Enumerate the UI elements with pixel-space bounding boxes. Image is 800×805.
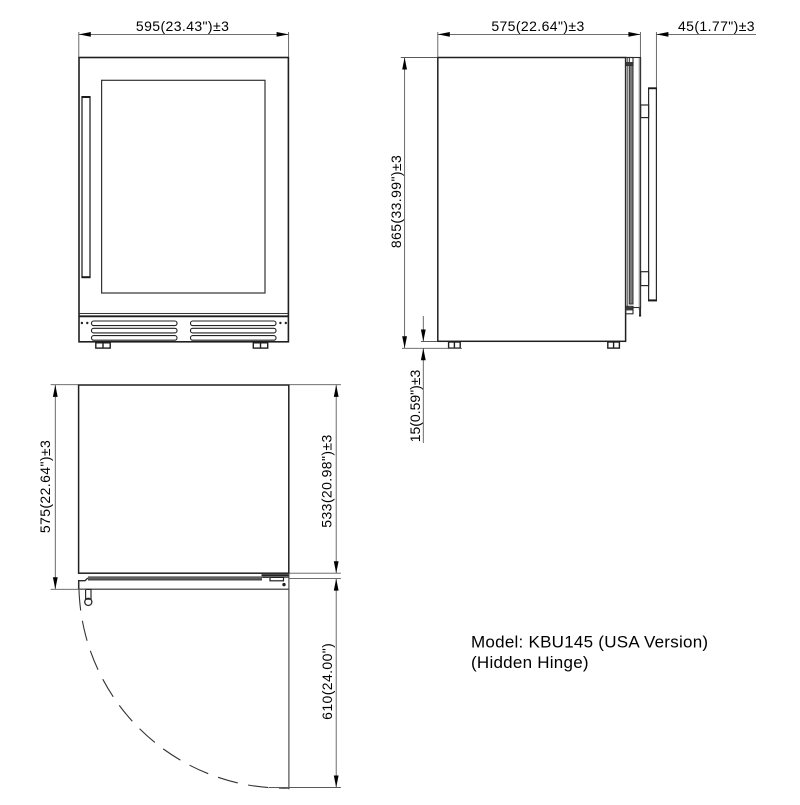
svg-text:575(22.64")±3: 575(22.64")±3: [37, 440, 53, 533]
svg-text:15(0.59")±3: 15(0.59")±3: [407, 369, 423, 442]
svg-text:575(22.64")±3: 575(22.64")±3: [491, 18, 584, 34]
svg-text:(Hidden Hinge): (Hidden Hinge): [471, 653, 589, 672]
svg-text:533(20.98")±3: 533(20.98")±3: [319, 434, 335, 527]
svg-text:45(1.77")±3: 45(1.77")±3: [678, 18, 755, 34]
svg-text:595(23.43")±3: 595(23.43")±3: [136, 18, 229, 34]
svg-text:610(24.00"): 610(24.00"): [319, 643, 335, 720]
svg-text:Model: KBU145 (USA Version): Model: KBU145 (USA Version): [471, 633, 708, 652]
svg-text:865(33.99")±3: 865(33.99")±3: [388, 155, 404, 248]
